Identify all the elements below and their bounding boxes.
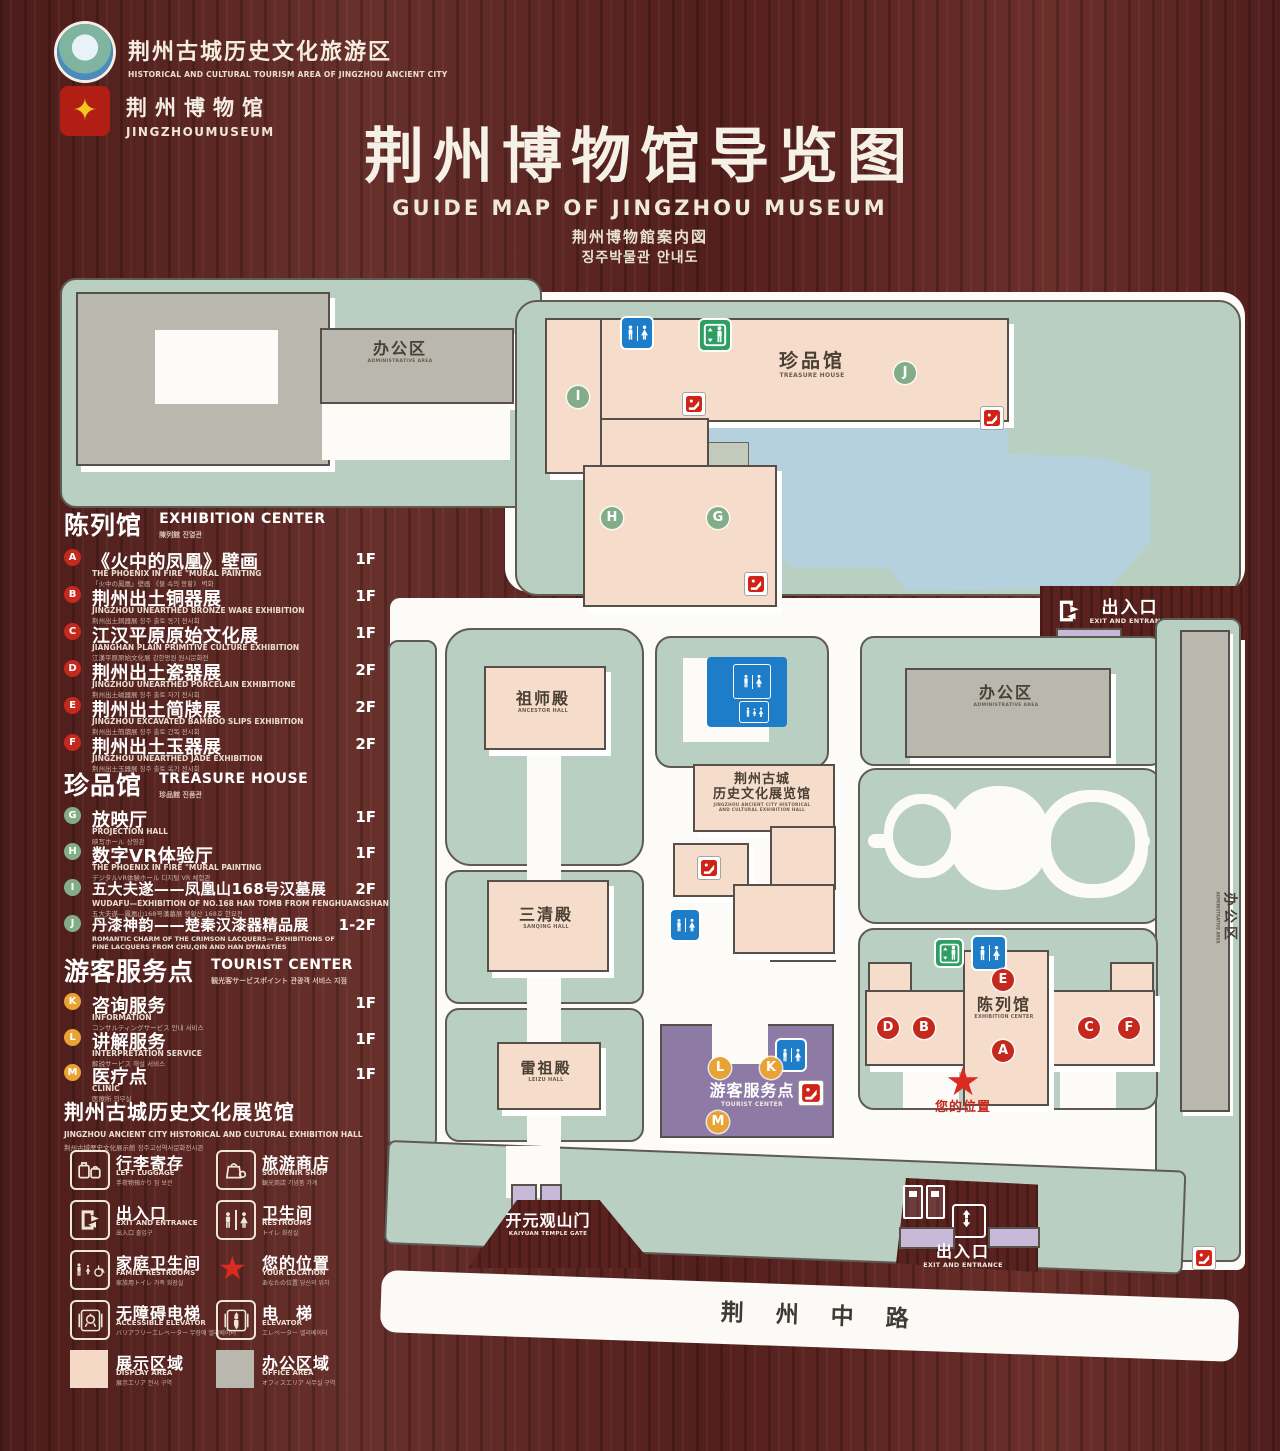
legend-item: F荆州出土玉器展2FJINGZHOU UNEARTHED JADE EXHIBI…: [64, 733, 376, 769]
facility-en: ELEVATOR: [262, 1319, 302, 1327]
tourism-area-logo: [57, 24, 113, 80]
section-title: 游客服务点: [64, 952, 194, 988]
restroom-icon: [622, 318, 652, 348]
facility-en: RESTROOMS: [262, 1219, 311, 1227]
elevator-icon: [700, 320, 730, 350]
your-location-label: 您的位置: [935, 1100, 991, 1115]
facility-en: LEFT LUGGAGE: [116, 1169, 175, 1177]
restroom-icon: [973, 937, 1005, 969]
escalator-icon: [744, 572, 768, 596]
map-marker-L: L: [709, 1057, 731, 1079]
map-marker-J: J: [894, 362, 916, 384]
marker-badge: L: [64, 1029, 81, 1046]
item-en: CLINIC: [92, 1084, 120, 1093]
office-area-swatch: [216, 1350, 254, 1388]
legend-item: I五大夫遂——凤凰山168号汉墓展2FWUDAFU—EXHIBITION OF …: [64, 878, 376, 914]
hall-note-en: JINGZHOU ANCIENT CITY HISTORICAL AND CUL…: [64, 1130, 394, 1139]
facility-sub: あなたの位置 당신의 위치: [262, 1278, 329, 1287]
item-en: INFORMATION: [92, 1013, 152, 1022]
legend-item: M医疗点1FCLINIC医療所 의무실: [64, 1063, 376, 1099]
marker-badge: H: [64, 843, 81, 860]
section-title-sub: 観光客サービスポイント 관광객 서비스 지점: [211, 976, 353, 986]
museum-logo: ✦: [60, 86, 110, 136]
escalator-icon: [682, 392, 706, 416]
hall-note-cn: 荆州古城历史文化展览馆: [64, 1096, 394, 1125]
road-label: 荆 州 中 路: [720, 1282, 922, 1351]
legend-item: D荆州出土瓷器展2FJINGZHOU UNEARTHED PORCELAIN E…: [64, 659, 376, 695]
legend-item: H数字VR体验厅1FTHE PHOENIX IN FIRE "MURAL PAI…: [64, 842, 376, 878]
family-restroom-icon: [739, 701, 769, 723]
item-en: THE PHOENIX IN FIRE "MURAL PAINTING: [92, 863, 261, 872]
section-title: 陈列馆: [64, 506, 142, 542]
garden-island-west: [893, 804, 951, 866]
west-lawn-strip: [388, 640, 437, 1149]
admin-courtyard-2: [322, 404, 510, 460]
marker-badge: C: [64, 623, 81, 640]
legend-item: E荆州出土简牍展2FJINGZHOU EXCAVATED BAMBOO SLIP…: [64, 696, 376, 732]
item-en: THE PHOENIX IN FIRE "MURAL PAINTING: [92, 569, 261, 578]
garden-island-east: [1051, 802, 1135, 884]
item-floor: 2F: [355, 698, 376, 716]
history-hall-label: 荆州古城 历史文化展览馆 JINGZHOU ANCIENT CITY HISTO…: [713, 772, 811, 813]
escalator-icon: [1192, 1246, 1216, 1270]
treasure-house-label: 珍品馆 TREASURE HOUSE: [779, 350, 845, 379]
facility-sub: 観光商店 기념품 가게: [262, 1178, 317, 1187]
admin-area-label: 办公区 ADMINISTRATIVE AREA: [367, 340, 432, 364]
admin-east-building: [905, 668, 1111, 758]
section-title-sub: 珍品館 진품관: [159, 790, 308, 800]
facility-en: YOUR LOCATION: [262, 1269, 326, 1277]
escalator-icon: [980, 406, 1004, 430]
escalator-icon: [697, 856, 721, 880]
elevator-icon: [936, 940, 962, 966]
restrooms-icon: [216, 1200, 256, 1240]
facility-sub: 出入口 출입구: [116, 1228, 152, 1237]
item-floor: 2F: [355, 880, 376, 898]
item-floor: 2F: [355, 661, 376, 679]
ancestor-hall-label: 祖师殿 ANCESTOR HALL: [516, 690, 570, 715]
map-marker-E: E: [992, 969, 1014, 991]
item-title: 丹漆神韵——楚秦汉漆器精品展: [92, 914, 309, 935]
souvenir-shop-icon: [216, 1150, 256, 1190]
legend-exhibition-header: 陈列馆 EXHIBITION CENTER 陳列館 진열관: [64, 506, 386, 542]
map-marker-C: C: [1078, 1017, 1100, 1039]
hall-note: 荆州古城历史文化展览馆 JINGZHOU ANCIENT CITY HISTOR…: [64, 1096, 394, 1152]
legend-item: K咨询服务1FINFORMATIONコンサルティングサービス 안내 서비스: [64, 992, 376, 1028]
ticket-machines-icon: [903, 1183, 945, 1221]
item-en: INTERPRETATION SERVICE: [92, 1049, 202, 1058]
admin-strip-building: [1180, 630, 1230, 1112]
map-marker-D: D: [877, 1017, 899, 1039]
legend-item: G放映厅1FPROJECTION HALL映写ホール 상영관: [64, 806, 376, 842]
page-title: 荆州博物馆导览图: [364, 108, 916, 195]
facility-en: FAMILY RESTROOMS: [116, 1269, 195, 1277]
elevator-icon: [216, 1300, 256, 1340]
kaiyuan-gate-label: 开元观山门 KAIYUAN TEMPLE GATE: [505, 1212, 590, 1237]
legend-treasure-header: 珍品馆 TREASURE HOUSE 珍品館 진품관: [64, 766, 386, 802]
area-en: OFFICE AREA: [262, 1369, 313, 1377]
legend-item: J丹漆神韵——楚秦汉漆器精品展1-2FROMANTIC CHARM OF THE…: [64, 914, 376, 950]
page-subtitle-ja: 荆州博物館案内図: [572, 226, 708, 247]
facility-sub: 家族用トイレ 가족 화장실: [116, 1278, 183, 1287]
item-en: JINGZHOU UNEARTHED PORCELAIN EXHIBITIONE: [92, 680, 296, 689]
facility-en: EXIT AND ENTRANCE: [116, 1219, 198, 1227]
marker-badge: E: [64, 697, 81, 714]
section-title-en: EXHIBITION CENTER: [159, 511, 325, 527]
map-marker-F: F: [1118, 1017, 1140, 1039]
exit-icon: [952, 1204, 986, 1238]
legend-item: A《火中的凤凰》壁画1FTHE PHOENIX IN FIRE "MURAL P…: [64, 548, 376, 584]
your-location-star-icon: ★: [945, 1062, 981, 1102]
page-subtitle-en: GUIDE MAP OF JINGZHOU MUSEUM: [392, 196, 887, 220]
map-marker-H: H: [601, 507, 623, 529]
tourist-center-label: 游客服务点 TOURIST CENTER: [709, 1082, 794, 1108]
item-floor: 1F: [355, 587, 376, 605]
facility-sub: エレベーター 엘리베이터: [262, 1328, 328, 1337]
tourism-area-cn: 荆州古城历史文化旅游区: [128, 34, 447, 66]
left-luggage-icon: [70, 1150, 110, 1190]
item-en: PROJECTION HALL: [92, 827, 168, 836]
tourism-area-logo-text: 荆州古城历史文化旅游区 HISTORICAL AND CULTURAL TOUR…: [128, 34, 447, 79]
escalator-icon: [798, 1080, 824, 1106]
item-en: JIANGHAN PLAIN PRIMITIVE CULTURE EXHIBIT…: [92, 643, 299, 652]
section-title-sub: 陳列館 진열관: [159, 530, 325, 540]
marker-badge: D: [64, 660, 81, 677]
item-floor: 1F: [355, 844, 376, 862]
guide-map-poster: 荆州古城历史文化旅游区 HISTORICAL AND CULTURAL TOUR…: [0, 0, 1280, 1451]
item-en: ROMANTIC CHARM OF THE CRIMSON LACQUERS— …: [92, 935, 352, 952]
area-sub: オフィスエリア 사무실 구역: [262, 1378, 335, 1387]
item-floor: 1-2F: [339, 916, 376, 934]
your-location-star-icon: ★: [218, 1250, 247, 1286]
legend-tourist-header: 游客服务点 TOURIST CENTER 観光客サービスポイント 관광객 서비스…: [64, 952, 386, 988]
history-hall-south: [733, 884, 835, 954]
item-floor: 1F: [355, 1030, 376, 1048]
item-en: JINGZHOU UNEARTHED BRONZE WARE EXHIBITIO…: [92, 606, 305, 615]
item-floor: 1F: [355, 994, 376, 1012]
section-title-en: TOURIST CENTER: [211, 957, 353, 973]
item-title: 五大夫遂——凤凰山168号汉墓展: [92, 878, 326, 899]
display-area-swatch: [70, 1350, 108, 1388]
leizu-hall-label: 雷祖殿 LEIZU HALL: [520, 1060, 571, 1084]
item-floor: 1F: [355, 550, 376, 568]
phoenix-icon: ✦: [72, 96, 97, 126]
legend-item: L讲解服务1FINTERPRETATION SERVICE解説サービス 해설 서…: [64, 1028, 376, 1064]
page-subtitle-ko: 징주박물관 안내도: [582, 247, 699, 267]
jingzhou-middle-road: 荆 州 中 路: [380, 1270, 1240, 1362]
item-en: JINGZHOU UNEARTHED JADE EXHIBITION: [92, 754, 263, 763]
marker-badge: F: [64, 734, 81, 751]
tourism-area-en: HISTORICAL AND CULTURAL TOURISM AREA OF …: [128, 70, 447, 79]
map-marker-B: B: [913, 1017, 935, 1039]
item-floor: 1F: [355, 624, 376, 642]
legend-item: B荆州出土铜器展1FJINGZHOU UNEARTHED BRONZE WARE…: [64, 585, 376, 621]
garden-pond-center: [948, 786, 1050, 890]
marker-badge: A: [64, 549, 81, 566]
admin-east-label: 办公区 ADMINISTRATIVE AREA: [973, 684, 1038, 708]
marker-badge: B: [64, 586, 81, 603]
restroom-icon: [733, 664, 771, 699]
exhibition-center-label: 陈列馆 EXHIBITION CENTER: [974, 996, 1033, 1021]
map-marker-I: I: [567, 386, 589, 408]
museum-cn: 荆州博物馆: [126, 92, 275, 122]
accessible-elevator-icon: [70, 1300, 110, 1340]
item-floor: 2F: [355, 735, 376, 753]
item-en: WUDAFU—EXHIBITION OF NO.168 HAN TOMB FRO…: [92, 899, 389, 908]
area-en: DISPLAY AREA: [116, 1369, 172, 1377]
facility-en: ACCESSIBLE ELEVATOR: [116, 1319, 206, 1327]
facility-sub: トイレ 화장실: [262, 1228, 298, 1237]
marker-badge: K: [64, 993, 81, 1010]
exit-entrance-label-bottom: 出入口 EXIT AND ENTRANCE: [923, 1243, 1003, 1269]
area-sub: 展示エリア 전시 구역: [116, 1378, 172, 1387]
marker-badge: I: [64, 879, 81, 896]
museum-logo-text: 荆州博物馆 JINGZHOUMUSEUM: [126, 92, 275, 139]
facility-sub: 手荷物預かり 짐 보관: [116, 1178, 172, 1187]
map-marker-A: A: [992, 1040, 1014, 1062]
marker-badge: M: [64, 1064, 81, 1081]
section-title-en: TREASURE HOUSE: [159, 771, 308, 787]
museum-en: JINGZHOUMUSEUM: [126, 125, 275, 139]
section-title: 珍品馆: [64, 766, 142, 802]
item-floor: 1F: [355, 1065, 376, 1083]
legend-item: C江汉平原原始文化展1FJIANGHAN PLAIN PRIMITIVE CUL…: [64, 622, 376, 658]
restroom-icon: [671, 910, 699, 940]
sanqing-hall-label: 三清殿 SANQING HALL: [519, 906, 573, 931]
item-floor: 1F: [355, 808, 376, 826]
admin-courtyard: [155, 330, 278, 404]
exhibition-courtyard-east: [1060, 1072, 1116, 1108]
map-marker-M: M: [707, 1111, 729, 1133]
marker-badge: G: [64, 807, 81, 824]
marker-badge: J: [64, 915, 81, 932]
admin-strip-label: 办公区 ADMINISTRATIVE AREA: [1215, 892, 1240, 944]
map-marker-G: G: [707, 507, 729, 529]
facility-en: SOUVENIR SHOP: [262, 1169, 327, 1177]
item-en: JINGZHOU EXCAVATED BAMBOO SLIPS EXHIBITI…: [92, 717, 303, 726]
family-restrooms-icon: [70, 1250, 110, 1290]
map-marker-K: K: [760, 1057, 782, 1079]
exit-entrance-icon: [70, 1200, 110, 1240]
exit-icon: [1056, 598, 1082, 624]
